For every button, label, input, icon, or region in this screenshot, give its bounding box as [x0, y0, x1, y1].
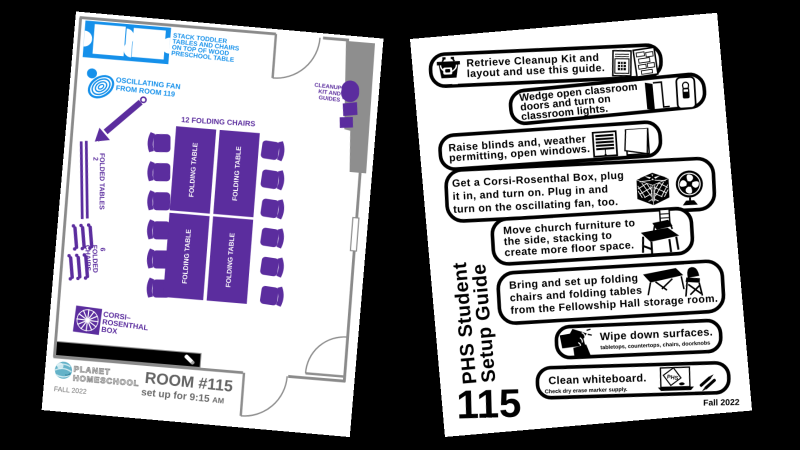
svg-text:2: 2: [91, 157, 98, 161]
svg-text:FALL 2022: FALL 2022: [54, 386, 87, 396]
svg-text:STACK TODDLERTABLES AND CHAIRS: STACK TODDLERTABLES AND CHAIRSON TOP OF …: [171, 32, 241, 64]
svg-text:CLEANUPKIT ANDGUIDES: CLEANUPKIT ANDGUIDES: [313, 83, 342, 104]
svg-text:115: 115: [456, 382, 522, 428]
svg-text:Fall 2022: Fall 2022: [703, 397, 740, 408]
svg-text:HOMESCHOOL: HOMESCHOOL: [73, 374, 140, 389]
svg-text:OSCILLATING FANFROM ROOM 119: OSCILLATING FANFROM ROOM 119: [115, 75, 181, 99]
svg-text:CORSI–ROSENTHALBOX: CORSI–ROSENTHALBOX: [101, 310, 150, 340]
svg-text:FOLDED TABLES: FOLDED TABLES: [98, 153, 105, 210]
svg-text:CHAIRS: CHAIRS: [83, 245, 91, 272]
svg-text:12 FOLDING CHAIRS: 12 FOLDING CHAIRS: [181, 115, 256, 128]
svg-text:6: 6: [99, 248, 106, 252]
